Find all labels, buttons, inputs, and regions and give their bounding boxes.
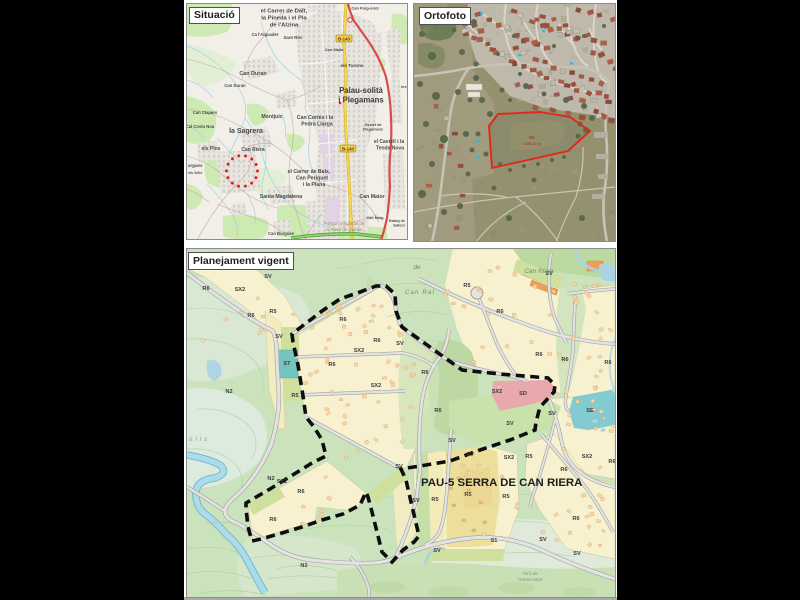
svg-text:Can Maig: Can Maig bbox=[367, 216, 385, 220]
svg-text:la Riera de Caldes: la Riera de Caldes bbox=[325, 227, 363, 232]
svg-text:SV: SV bbox=[395, 464, 403, 470]
svg-text:Gesiet de: Gesiet de bbox=[364, 123, 381, 127]
svg-text:els Pins: els Pins bbox=[202, 146, 221, 152]
svg-text:la Sagrera: la Sagrera bbox=[229, 128, 263, 135]
svg-text:Tenda Nova: Tenda Nova bbox=[376, 146, 404, 152]
svg-text:SX2: SX2 bbox=[492, 389, 503, 395]
svg-text:ST: ST bbox=[283, 361, 291, 367]
svg-text:R5: R5 bbox=[502, 494, 509, 500]
svg-text:R5: R5 bbox=[464, 492, 471, 498]
svg-text:5.598,10 m²: 5.598,10 m² bbox=[523, 142, 542, 146]
svg-text:Montjuic: Montjuic bbox=[261, 114, 282, 120]
svg-text:i la Plana: i la Plana bbox=[303, 182, 326, 188]
svg-text:SV: SV bbox=[264, 274, 272, 280]
svg-text:argues: argues bbox=[188, 163, 203, 168]
svg-text:Can Riera: Can Riera bbox=[524, 268, 554, 275]
svg-text:Can Ral: Can Ral bbox=[405, 290, 435, 296]
svg-text:SX2: SX2 bbox=[371, 383, 382, 389]
svg-text:R6: R6 bbox=[604, 360, 611, 366]
svg-text:Polígon industrial de: Polígon industrial de bbox=[324, 221, 365, 226]
svg-text:SV: SV bbox=[412, 498, 420, 504]
svg-text:SV: SV bbox=[396, 341, 404, 347]
svg-text:N2: N2 bbox=[300, 563, 307, 569]
svg-text:R6: R6 bbox=[572, 516, 579, 522]
svg-text:R6: R6 bbox=[373, 338, 380, 344]
svg-text:Can Maior: Can Maior bbox=[359, 194, 384, 200]
svg-text:Plegamans: Plegamans bbox=[363, 128, 383, 132]
svg-text:les C: les C bbox=[401, 84, 407, 89]
svg-text:el Castell i la: el Castell i la bbox=[374, 139, 405, 145]
svg-text:els Vells: els Vells bbox=[188, 171, 202, 175]
svg-text:R6: R6 bbox=[496, 309, 503, 315]
svg-text:Dv: Dv bbox=[529, 135, 535, 140]
svg-text:PAU-5 SERRA DE CAN RIERA: PAU-5 SERRA DE CAN RIERA bbox=[421, 477, 582, 489]
svg-text:Can Burgues: Can Burgues bbox=[268, 231, 295, 236]
svg-text:Pedra Llarga: Pedra Llarga bbox=[301, 122, 333, 128]
svg-text:SV: SV bbox=[275, 334, 283, 340]
svg-text:B-143: B-143 bbox=[342, 146, 355, 151]
svg-text:R6: R6 bbox=[247, 313, 254, 319]
svg-text:R6: R6 bbox=[608, 459, 615, 465]
svg-text:SV: SV bbox=[448, 438, 456, 444]
svg-text:Palau-solità: Palau-solità bbox=[339, 86, 383, 95]
svg-text:Can Cortès i la: Can Cortès i la bbox=[297, 115, 333, 121]
svg-text:Can Puig-oriol: Can Puig-oriol bbox=[351, 6, 378, 11]
svg-text:R6: R6 bbox=[297, 489, 304, 495]
svg-text:R6: R6 bbox=[561, 357, 568, 363]
svg-text:el Carrer de Dalt,: el Carrer de Dalt, bbox=[261, 9, 308, 15]
svg-text:SD: SD bbox=[519, 391, 527, 397]
svg-text:N2: N2 bbox=[225, 389, 232, 395]
svg-text:Sant Roc: Sant Roc bbox=[283, 35, 303, 40]
svg-text:el Carrer de Baix,: el Carrer de Baix, bbox=[288, 169, 331, 175]
svg-text:R6: R6 bbox=[434, 408, 441, 414]
svg-text:Can Duran: Can Duran bbox=[239, 71, 266, 77]
svg-text:S1: S1 bbox=[491, 538, 498, 544]
svg-text:Can Clapers: Can Clapers bbox=[193, 110, 218, 115]
svg-text:Ca l'Aiguader: Ca l'Aiguader bbox=[252, 32, 279, 37]
svg-text:els Turons: els Turons bbox=[341, 63, 364, 68]
svg-text:B-143: B-143 bbox=[338, 36, 351, 41]
svg-text:SV: SV bbox=[539, 537, 547, 543]
svg-text:R6: R6 bbox=[421, 370, 428, 376]
svg-text:Can Riera: Can Riera bbox=[241, 147, 265, 153]
svg-text:R6: R6 bbox=[535, 352, 542, 358]
svg-text:R6: R6 bbox=[269, 517, 276, 523]
svg-text:Can Malla: Can Malla bbox=[325, 47, 344, 52]
svg-text:l'Homo Mort: l'Homo Mort bbox=[518, 577, 543, 582]
svg-text:R5: R5 bbox=[463, 283, 470, 289]
svg-text:de l'Alzina: de l'Alzina bbox=[270, 23, 299, 29]
svg-text:Gallecs: Gallecs bbox=[393, 224, 405, 228]
svg-text:SE: SE bbox=[586, 408, 594, 414]
svg-text:SX2: SX2 bbox=[354, 348, 365, 354]
svg-text:de: de bbox=[413, 264, 421, 271]
svg-text:R5: R5 bbox=[269, 309, 276, 315]
svg-text:R5: R5 bbox=[431, 497, 438, 503]
svg-text:i Plegamans: i Plegamans bbox=[338, 96, 384, 105]
svg-text:SV: SV bbox=[466, 452, 474, 458]
svg-text:Santa Magdalena: Santa Magdalena bbox=[260, 194, 302, 200]
svg-text:SX2: SX2 bbox=[582, 454, 593, 460]
svg-text:Torò de: Torò de bbox=[522, 571, 538, 576]
svg-text:SX2: SX2 bbox=[277, 479, 288, 485]
svg-text:R5: R5 bbox=[525, 454, 532, 460]
svg-text:la Pineda i el Pla: la Pineda i el Pla bbox=[261, 16, 307, 22]
svg-text:Cal Costa Nou: Cal Costa Nou bbox=[187, 124, 215, 129]
svg-text:Can Periquet: Can Periquet bbox=[296, 176, 328, 182]
svg-text:olls: olls bbox=[189, 437, 210, 443]
svg-text:SV: SV bbox=[548, 411, 556, 417]
svg-text:R6: R6 bbox=[328, 362, 335, 368]
svg-text:SV: SV bbox=[433, 548, 441, 554]
svg-text:SX2: SX2 bbox=[504, 455, 515, 461]
svg-text:R6: R6 bbox=[560, 467, 567, 473]
svg-text:N2: N2 bbox=[267, 476, 274, 482]
svg-text:Can Duran: Can Duran bbox=[224, 83, 246, 88]
svg-text:R6: R6 bbox=[339, 317, 346, 323]
svg-text:R6: R6 bbox=[202, 286, 209, 292]
svg-text:R5: R5 bbox=[291, 393, 298, 399]
svg-text:SX2: SX2 bbox=[235, 287, 246, 293]
svg-text:SV: SV bbox=[506, 421, 514, 427]
svg-text:Estany de: Estany de bbox=[389, 219, 405, 223]
svg-text:SV: SV bbox=[573, 551, 581, 557]
